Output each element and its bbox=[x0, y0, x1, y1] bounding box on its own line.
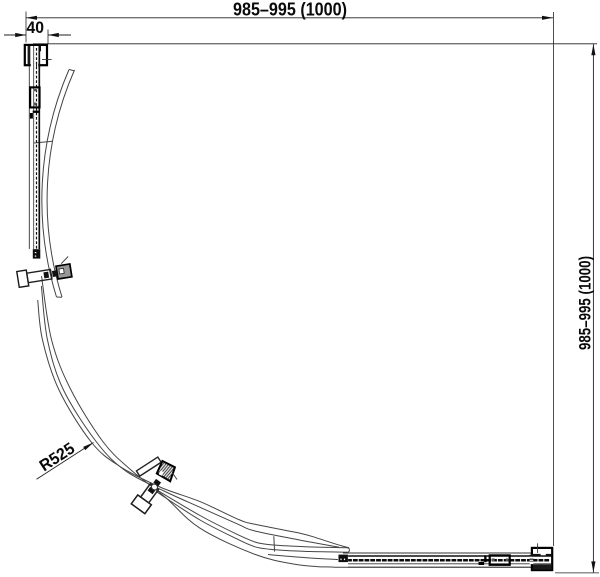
svg-text:40: 40 bbox=[27, 19, 45, 37]
svg-text:985–995 (1000): 985–995 (1000) bbox=[233, 0, 347, 20]
svg-text:985–995 (1000): 985–995 (1000) bbox=[576, 256, 595, 350]
